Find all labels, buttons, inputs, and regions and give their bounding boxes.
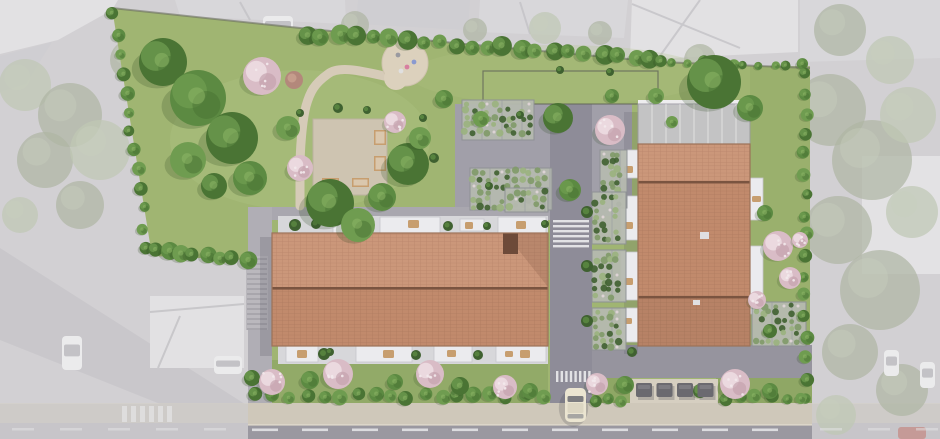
- rooftop-unit: [693, 300, 700, 305]
- lane-dash: [552, 429, 578, 432]
- lane-dash: [302, 429, 328, 432]
- crosswalk-stripe: [579, 371, 581, 382]
- lane-dash: [602, 429, 628, 432]
- roof-south-slope: [272, 289, 548, 346]
- crosswalk-stripe: [570, 371, 572, 382]
- terrace-table: [465, 222, 473, 229]
- muted-crosswalk-stripe: [149, 406, 154, 422]
- vine-pergola: [591, 308, 626, 351]
- lane-dash: [402, 429, 428, 432]
- crosswalk-stripe: [561, 371, 563, 382]
- aerial-render-canvas: [0, 0, 940, 439]
- crosswalk-stripe: [553, 240, 589, 242]
- muted-crosswalk-stripe: [158, 406, 163, 422]
- lane-dash: [252, 429, 278, 432]
- play-equipment: [412, 60, 417, 65]
- vine-pergola: [752, 302, 806, 346]
- lane-dash: [452, 429, 478, 432]
- neighbor-roof: [630, 0, 798, 60]
- lane-dash: [752, 429, 778, 432]
- play-equipment: [399, 69, 404, 74]
- rooftop-unit: [700, 232, 709, 239]
- lane-dash: [352, 429, 378, 432]
- lane-dash: [652, 429, 678, 432]
- play-equipment: [405, 65, 410, 70]
- roof-ridge: [638, 296, 750, 298]
- terrace-table: [752, 196, 761, 202]
- terrace-table: [447, 350, 456, 357]
- terrace-table: [297, 350, 307, 358]
- building-shadow: [260, 237, 272, 356]
- street: [248, 425, 812, 439]
- crosswalk-stripe: [553, 230, 589, 232]
- roof-upper-section: [638, 144, 750, 182]
- vine-pergola: [590, 250, 626, 302]
- crosswalk-stripe: [553, 235, 589, 237]
- crosswalk-stripe: [574, 371, 576, 382]
- sidewalk: [248, 403, 812, 425]
- terrace-table: [516, 221, 526, 229]
- muted-crosswalk-stripe: [167, 406, 172, 422]
- lane-dash: [502, 429, 528, 432]
- vine-pergola: [505, 188, 548, 212]
- terrace-table: [520, 350, 530, 358]
- muted-crosswalk-stripe: [140, 406, 145, 422]
- vine-pergola: [591, 192, 626, 244]
- muted-crosswalk-stripe: [131, 406, 136, 422]
- crosswalk-stripe: [553, 220, 589, 222]
- playground-sand: [384, 66, 408, 90]
- terrace-table: [408, 220, 419, 228]
- left-building: [260, 216, 549, 364]
- lane-dash: [702, 429, 728, 432]
- crosswalk-stripe: [553, 245, 589, 247]
- roof-inset: [503, 233, 518, 254]
- crosswalk-stripe: [553, 225, 589, 227]
- crosswalk-stripe: [565, 371, 567, 382]
- terrace-table: [505, 351, 513, 357]
- roof-ridge: [272, 287, 548, 290]
- crosswalk-stripe: [556, 371, 558, 382]
- terrace-table: [383, 350, 394, 358]
- right-building: [621, 100, 763, 354]
- crosswalk-stripe: [584, 371, 586, 382]
- roof-ridge: [638, 181, 750, 183]
- site-plan-rendering: [0, 0, 940, 439]
- car-windshield: [568, 396, 584, 402]
- muted-crosswalk-stripe: [122, 406, 127, 422]
- roof-middle-section: [638, 182, 750, 297]
- internal-road: [550, 104, 592, 406]
- play-equipment: [396, 53, 401, 58]
